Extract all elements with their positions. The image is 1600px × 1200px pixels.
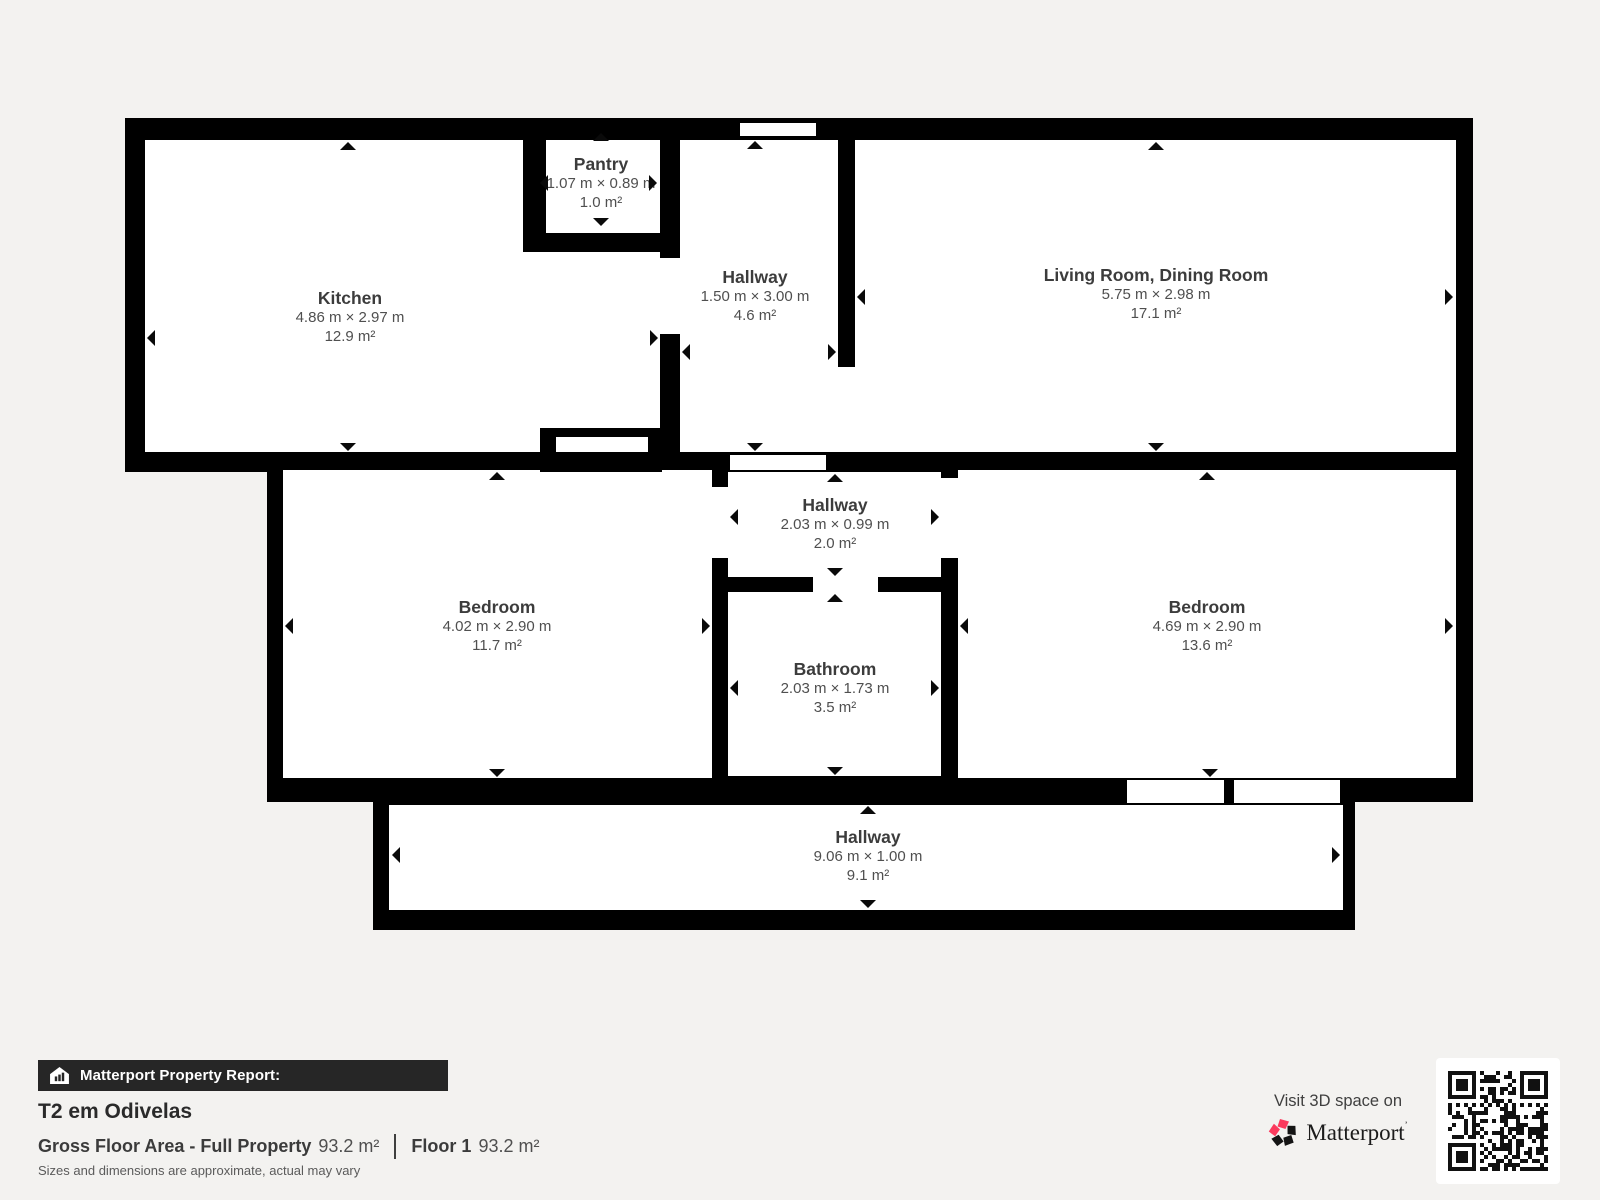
door-opening xyxy=(1127,780,1224,803)
dim-arrow-up-icon xyxy=(1199,472,1215,480)
matterport-pinwheel-icon xyxy=(1268,1118,1298,1148)
dim-arrow-up-icon xyxy=(827,474,843,482)
visit-3d-text: Visit 3D space on xyxy=(1252,1092,1424,1111)
disclaimer-text: Sizes and dimensions are approximate, ac… xyxy=(38,1163,360,1178)
dim-arrow-left-icon xyxy=(147,330,155,346)
dim-arrow-down-icon xyxy=(340,443,356,451)
matterport-logo: Matterport’ xyxy=(1252,1118,1424,1148)
divider xyxy=(394,1134,396,1159)
dim-arrow-down-icon xyxy=(827,568,843,576)
dim-arrow-right-icon xyxy=(828,344,836,360)
dim-arrow-down-icon xyxy=(747,443,763,451)
trademark-mark: ’ xyxy=(1405,1120,1408,1130)
dim-arrow-down-icon xyxy=(860,900,876,908)
dim-arrow-left-icon xyxy=(730,680,738,696)
dim-arrow-down-icon xyxy=(593,218,609,226)
room-label-bedroom-left: Bedroom 4.02 m × 2.90 m 11.7 m² xyxy=(443,597,552,655)
dim-arrow-down-icon xyxy=(1202,769,1218,777)
door-opening xyxy=(660,258,680,334)
room-label-kitchen: Kitchen 4.86 m × 2.97 m 12.9 m² xyxy=(296,288,405,346)
dim-arrow-left-icon xyxy=(730,509,738,525)
floor-label: Floor 1 xyxy=(411,1136,471,1157)
qr-code-container xyxy=(1436,1058,1560,1184)
dim-arrow-down-icon xyxy=(1148,443,1164,451)
room-label-bedroom-right: Bedroom 4.69 m × 2.90 m 13.6 m² xyxy=(1153,597,1262,655)
report-header-bar: Matterport Property Report: xyxy=(38,1060,448,1091)
gross-floor-area-value: 93.2 m² xyxy=(318,1136,379,1157)
door-opening xyxy=(730,455,826,470)
qr-code xyxy=(1448,1071,1548,1171)
floor-area-info: Gross Floor Area - Full Property 93.2 m²… xyxy=(38,1134,539,1159)
visit-3d-block: Visit 3D space on Matterport’ xyxy=(1252,1092,1424,1148)
dim-arrow-up-icon xyxy=(489,472,505,480)
dim-arrow-up-icon xyxy=(340,142,356,150)
dim-arrow-down-icon xyxy=(827,767,843,775)
dim-arrow-left-icon xyxy=(392,847,400,863)
dim-arrow-right-icon xyxy=(1445,618,1453,634)
dim-arrow-right-icon xyxy=(702,618,710,634)
dim-arrow-right-icon xyxy=(649,175,657,191)
door-opening xyxy=(838,367,855,452)
door-opening xyxy=(710,487,728,558)
dim-arrow-down-icon xyxy=(489,769,505,777)
dim-arrow-right-icon xyxy=(650,330,658,346)
room-label-hallway-bottom: Hallway 9.06 m × 1.00 m 9.1 m² xyxy=(814,827,923,885)
door-opening xyxy=(1234,780,1340,803)
dim-arrow-left-icon xyxy=(682,344,690,360)
dim-arrow-left-icon xyxy=(960,618,968,634)
house-chart-icon xyxy=(50,1067,69,1084)
dim-arrow-right-icon xyxy=(931,509,939,525)
room-label-pantry: Pantry 1.07 m × 0.89 m 1.0 m² xyxy=(547,154,656,212)
floor-value: 93.2 m² xyxy=(478,1136,539,1157)
report-header-label: Matterport Property Report: xyxy=(80,1067,280,1084)
dim-arrow-up-icon xyxy=(1148,142,1164,150)
dim-arrow-left-icon xyxy=(540,175,548,191)
room-label-living-dining: Living Room, Dining Room 5.75 m × 2.98 m… xyxy=(1044,265,1269,323)
gross-floor-area-label: Gross Floor Area - Full Property xyxy=(38,1136,311,1157)
matterport-wordmark: Matterport’ xyxy=(1306,1120,1407,1146)
dim-arrow-right-icon xyxy=(1332,847,1340,863)
door-opening xyxy=(813,577,878,592)
door-opening xyxy=(941,478,958,558)
dim-arrow-up-icon xyxy=(593,133,609,141)
property-report-page: { "rooms": [ {"name":"Pantry","dims":"1.… xyxy=(0,0,1600,1200)
dim-arrow-up-icon xyxy=(827,594,843,602)
floor-plan: Pantry 1.07 m × 0.89 m 1.0 m² Kitchen 4.… xyxy=(0,0,1600,1200)
dim-arrow-up-icon xyxy=(860,806,876,814)
dim-arrow-up-icon xyxy=(747,141,763,149)
room-label-hallway-top: Hallway 1.50 m × 3.00 m 4.6 m² xyxy=(701,267,810,325)
dim-arrow-left-icon xyxy=(857,289,865,305)
room-label-bathroom: Bathroom 2.03 m × 1.73 m 3.5 m² xyxy=(781,659,890,717)
dim-arrow-right-icon xyxy=(1445,289,1453,305)
dim-arrow-left-icon xyxy=(285,618,293,634)
room-label-hallway-middle: Hallway 2.03 m × 0.99 m 2.0 m² xyxy=(781,495,890,553)
door-opening xyxy=(556,437,648,452)
door-opening xyxy=(740,123,816,136)
dim-arrow-right-icon xyxy=(931,680,939,696)
property-title: T2 em Odivelas xyxy=(38,1100,192,1124)
